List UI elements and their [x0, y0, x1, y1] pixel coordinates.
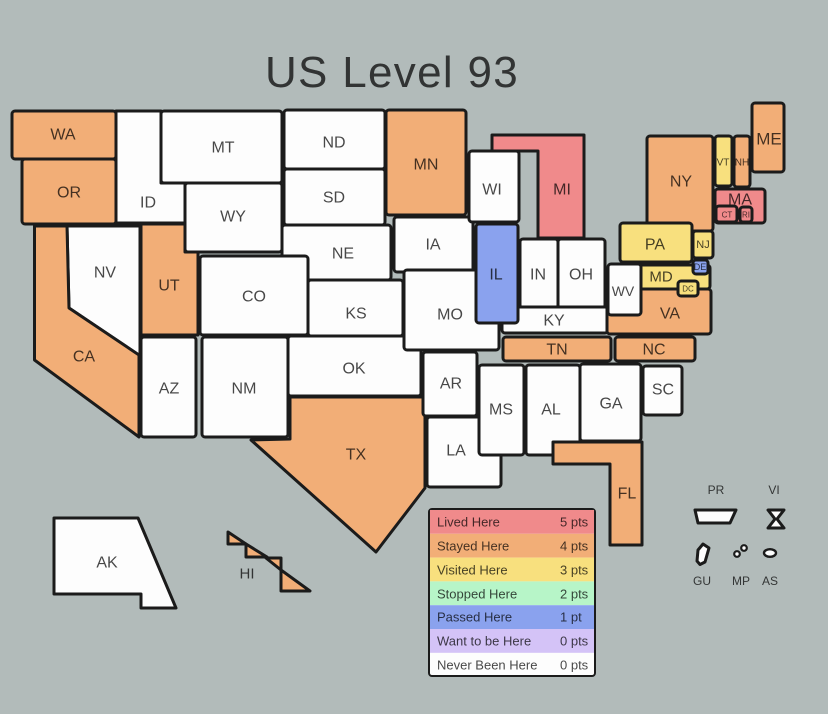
svg-text:US Level 93: US Level 93 — [265, 48, 519, 97]
svg-text:DC: DC — [682, 285, 694, 294]
svg-text:WI: WI — [482, 182, 502, 199]
svg-text:AR: AR — [440, 376, 462, 393]
svg-text:DE: DE — [694, 262, 707, 272]
svg-text:NH: NH — [735, 158, 749, 169]
svg-text:AK: AK — [96, 555, 118, 572]
svg-text:SD: SD — [323, 190, 345, 207]
svg-text:UT: UT — [158, 278, 180, 295]
svg-text:IN: IN — [530, 267, 546, 284]
svg-text:CT: CT — [722, 211, 733, 220]
svg-text:5 pts: 5 pts — [560, 515, 589, 530]
svg-text:NJ: NJ — [696, 239, 709, 251]
svg-text:FL: FL — [618, 486, 637, 503]
svg-text:RI: RI — [742, 211, 750, 220]
svg-text:IL: IL — [489, 267, 502, 284]
svg-text:MT: MT — [211, 140, 234, 157]
svg-text:ID: ID — [140, 195, 156, 212]
svg-text:OH: OH — [569, 267, 593, 284]
svg-text:LA: LA — [446, 443, 466, 460]
svg-text:MP: MP — [732, 574, 750, 588]
svg-text:IA: IA — [425, 237, 440, 254]
svg-text:AS: AS — [762, 574, 778, 588]
svg-text:PA: PA — [645, 237, 665, 254]
svg-text:PR: PR — [708, 483, 725, 497]
svg-text:VT: VT — [717, 158, 730, 169]
svg-text:MD: MD — [649, 269, 672, 286]
svg-text:VA: VA — [660, 306, 680, 323]
svg-text:KY: KY — [543, 313, 565, 330]
svg-text:HI: HI — [240, 566, 255, 583]
svg-text:GU: GU — [693, 574, 711, 588]
svg-text:MN: MN — [414, 157, 439, 174]
svg-text:OR: OR — [57, 185, 81, 202]
svg-text:GA: GA — [599, 396, 622, 413]
svg-text:OK: OK — [342, 361, 365, 378]
svg-text:0 pts: 0 pts — [560, 634, 589, 649]
svg-text:CA: CA — [73, 349, 96, 366]
svg-text:Never Been Here: Never Been Here — [437, 658, 537, 673]
svg-text:NV: NV — [94, 265, 117, 282]
svg-text:Lived Here: Lived Here — [437, 515, 500, 530]
svg-text:WY: WY — [220, 209, 246, 226]
svg-text:NY: NY — [670, 174, 693, 191]
svg-text:0 pts: 0 pts — [560, 658, 589, 673]
svg-text:4 pts: 4 pts — [560, 539, 589, 554]
svg-text:MI: MI — [553, 182, 571, 199]
svg-text:TX: TX — [346, 447, 367, 464]
svg-text:2 pts: 2 pts — [560, 587, 589, 602]
svg-text:VI: VI — [768, 483, 779, 497]
svg-text:MS: MS — [489, 402, 513, 419]
svg-text:CO: CO — [242, 289, 266, 306]
svg-text:3 pts: 3 pts — [560, 563, 589, 578]
svg-text:Want to be Here: Want to be Here — [437, 634, 531, 649]
svg-text:Stayed Here: Stayed Here — [437, 539, 509, 554]
svg-text:ME: ME — [756, 130, 782, 149]
svg-text:Passed Here: Passed Here — [437, 610, 512, 625]
svg-text:NC: NC — [642, 342, 665, 359]
svg-text:KS: KS — [345, 306, 366, 323]
svg-text:WV: WV — [612, 283, 635, 299]
svg-text:Visited Here: Visited Here — [437, 563, 508, 578]
svg-text:Stopped Here: Stopped Here — [437, 587, 517, 602]
svg-text:NM: NM — [232, 381, 257, 398]
svg-text:WA: WA — [50, 127, 76, 144]
svg-text:SC: SC — [652, 382, 674, 399]
svg-text:ND: ND — [322, 135, 345, 152]
svg-text:AL: AL — [541, 402, 561, 419]
svg-text:MO: MO — [437, 307, 463, 324]
svg-text:NE: NE — [332, 246, 354, 263]
svg-text:AZ: AZ — [159, 381, 180, 398]
svg-text:1 pt: 1 pt — [560, 610, 582, 625]
svg-text:TN: TN — [546, 342, 567, 359]
